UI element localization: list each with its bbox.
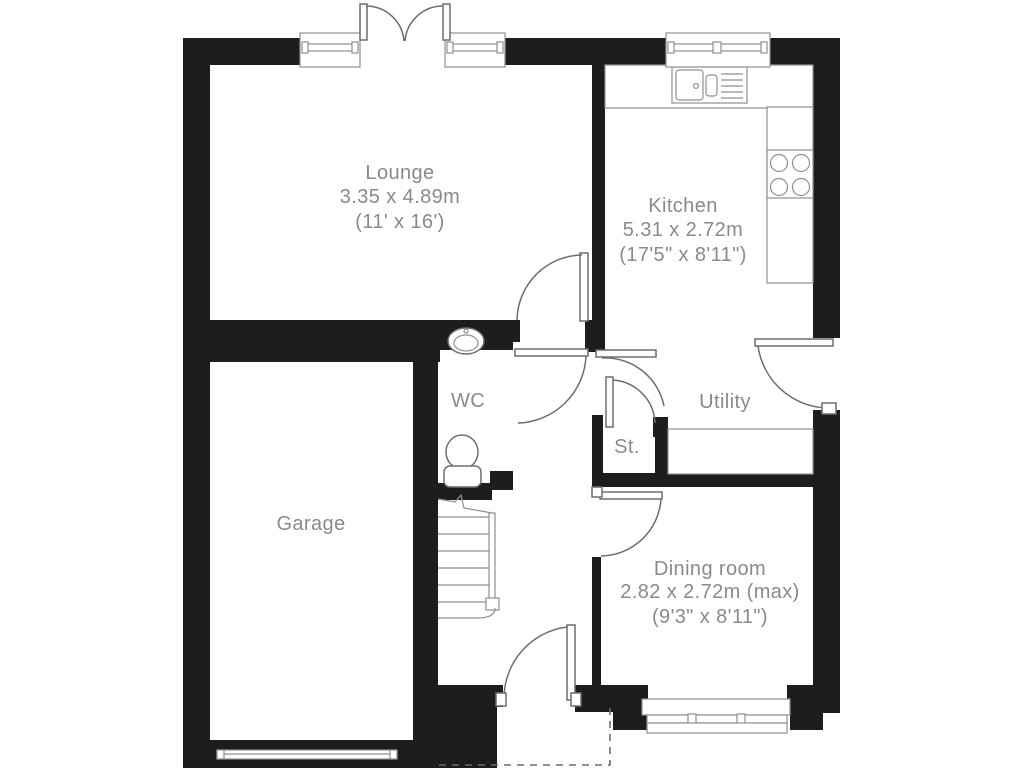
wc-toilet <box>444 435 481 487</box>
wall-top-mid <box>503 38 669 65</box>
garage-label: Garage <box>276 513 345 535</box>
kitchen-sink <box>672 67 747 103</box>
lounge-window-right <box>445 33 505 67</box>
wall-porch-left-chunk <box>425 707 497 768</box>
kitchen-window <box>666 33 770 67</box>
wall-right-lower <box>813 410 840 713</box>
lounge-dimensions-imperial: (11' x 16') <box>355 211 444 233</box>
floor-plan-canvas: Lounge 3.35 x 4.89m (11' x 16') Kitchen … <box>0 0 1024 768</box>
wall-left <box>183 38 210 768</box>
wall-wc-corner-stub <box>490 471 513 490</box>
wall-dining-left <box>592 557 601 687</box>
french-doors <box>360 4 450 41</box>
wall-hall-bottom-left <box>420 685 503 707</box>
wall-garage-right <box>413 340 438 740</box>
wall-dining-bottom-left <box>575 685 648 712</box>
wall-garage-top <box>205 340 440 362</box>
wall-dining-bottom-right <box>787 685 838 712</box>
lounge-label: Lounge <box>365 162 434 184</box>
kitchen-label: Kitchen <box>648 195 718 217</box>
wc-basin <box>448 328 484 354</box>
hob <box>767 150 813 198</box>
kitchen-dimensions-imperial: (17'5" x 8'11") <box>619 244 747 266</box>
lounge-dimensions-metric: 3.35 x 4.89m <box>340 186 460 208</box>
utility-worktop <box>668 429 813 474</box>
wall-hall-bottom-band <box>592 473 813 487</box>
wc-door <box>515 349 588 423</box>
dining-room-door <box>592 487 662 556</box>
dining-dimensions-imperial: (9'3" x 8'11") <box>652 606 768 628</box>
wall-right-upper <box>813 38 840 338</box>
dining-dimensions-metric: 2.82 x 2.72m (max) <box>620 581 800 603</box>
front-door <box>496 625 581 706</box>
stairs-treads <box>438 517 492 602</box>
lounge-window-left <box>300 33 360 67</box>
store-door <box>606 377 655 427</box>
floor-plan: Lounge 3.35 x 4.89m (11' x 16') Kitchen … <box>0 0 1024 768</box>
stairs <box>438 495 499 618</box>
store-label: St. <box>614 436 640 458</box>
wc-label: WC <box>451 390 485 412</box>
garage-door <box>217 750 397 759</box>
stairs-newel <box>486 598 499 610</box>
stairs-handrail <box>489 513 495 600</box>
dining-window <box>642 699 790 733</box>
room-labels: Lounge 3.35 x 4.89m (11' x 16') Kitchen … <box>276 162 799 628</box>
utility-external-door <box>755 339 836 414</box>
utility-label: Utility <box>699 391 751 413</box>
lounge-door <box>517 253 588 321</box>
wall-kitchen-divider <box>592 63 605 350</box>
wall-dining-bottom-right-step <box>790 712 823 730</box>
dining-label: Dining room <box>654 558 766 580</box>
kitchen-dimensions-metric: 5.31 x 2.72m <box>623 219 743 241</box>
